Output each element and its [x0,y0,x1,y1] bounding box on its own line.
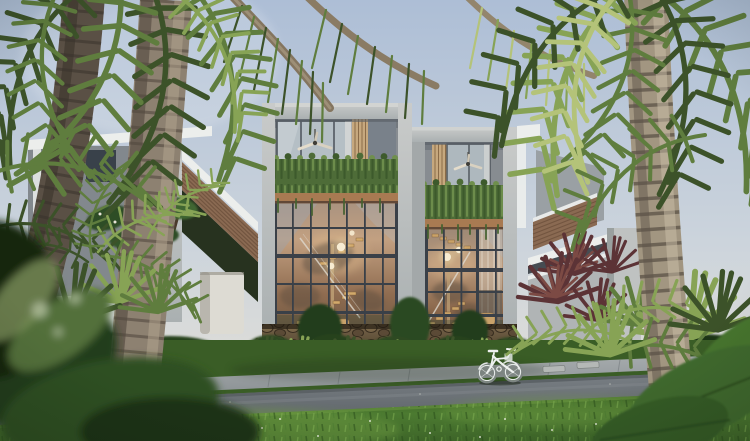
villa-rendering [0,0,750,441]
scene-rendering [0,0,750,441]
vignette [0,0,750,441]
